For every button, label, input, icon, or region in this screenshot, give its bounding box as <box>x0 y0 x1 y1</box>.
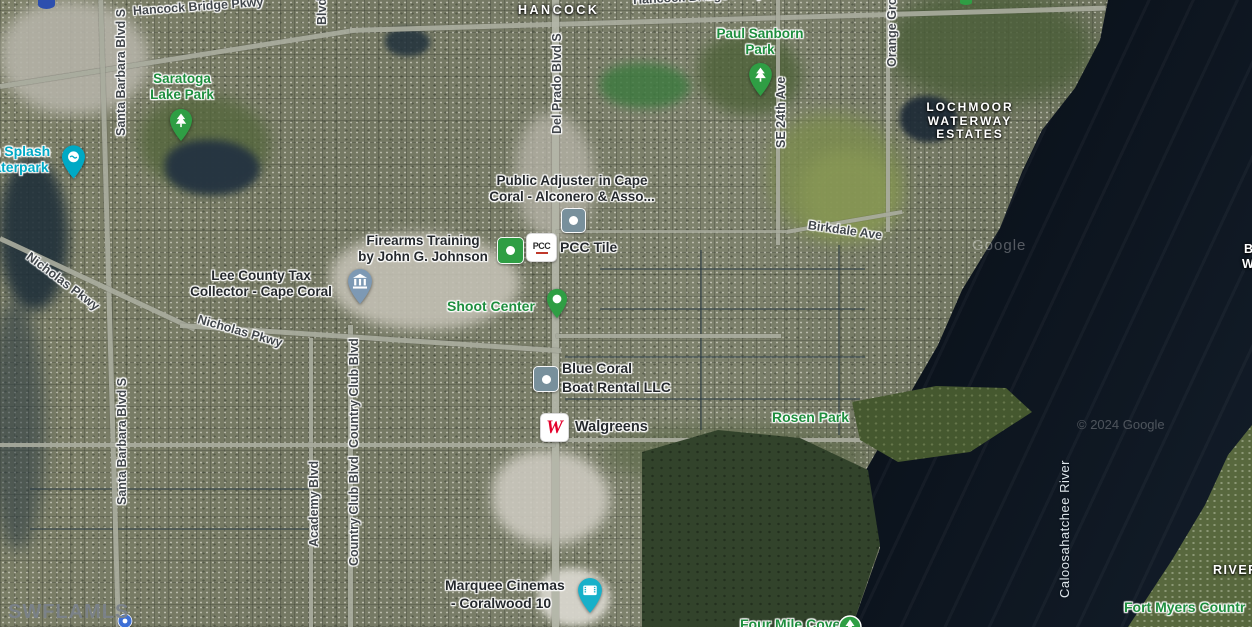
area-label-edge-w: W <box>1242 257 1252 272</box>
trail-pin-icon[interactable] <box>838 615 862 627</box>
terrain-patch <box>600 63 690 108</box>
pin-inner-circle <box>553 295 562 304</box>
poi-label-line: Blue Coral <box>562 359 671 378</box>
street-label-country-club-south: Country Club Blvd <box>347 458 361 566</box>
blue-pin-fragment[interactable] <box>38 0 55 9</box>
poi-label-line: Paul Sanborn <box>705 26 815 42</box>
canal-line <box>565 398 860 400</box>
satellite-map[interactable]: Hancock Bridge Pkwy Hancock Bridge Pkwy … <box>0 0 1252 627</box>
poi-label-line: n Splash <box>0 143 60 159</box>
terrain-patch <box>165 140 260 195</box>
canal-line <box>600 268 865 270</box>
marker-dot <box>506 246 515 255</box>
road-line <box>556 230 786 233</box>
poi-label-blue-coral[interactable]: Blue Coral Boat Rental LLC <box>562 359 671 397</box>
poi-label-rosen-park[interactable]: Rosen Park <box>772 409 849 425</box>
pin-body <box>547 289 567 318</box>
poi-label-line: by John G. Johnson <box>348 249 498 265</box>
poi-label-public-adjuster[interactable]: Public Adjuster in Cape Coral - Alconero… <box>472 173 672 205</box>
poi-label-line: Firearms Training <box>348 233 498 249</box>
walgreens-w-logo: W <box>546 418 563 437</box>
area-label-lochmoor: LOCHMOOR WATERWAY ESTATES <box>903 101 1037 142</box>
poi-label-line: aterpark <box>0 159 60 175</box>
road-line <box>0 443 555 447</box>
poi-label-line: Lake Park <box>133 87 231 103</box>
dot-pin-icon[interactable] <box>546 288 568 319</box>
pcc-logo-underline <box>536 252 548 254</box>
poi-label-fort-myers-country[interactable]: Fort Myers Countr <box>1124 599 1245 615</box>
street-label-del-prado: Del Prado Blvd S <box>550 31 564 137</box>
tree-pin-icon[interactable] <box>169 108 193 142</box>
google-watermark: Google <box>972 237 1026 254</box>
poi-marker-pcc-tile-logo[interactable]: PCC <box>526 233 557 262</box>
area-label-lochmoor-line1: LOCHMOOR <box>903 101 1037 115</box>
poi-marker-firearms-training[interactable] <box>497 237 524 264</box>
poi-label-lee-county-tax[interactable]: Lee County Tax Collector - Cape Coral <box>175 268 347 300</box>
poi-label-line: - Coralwood 10 <box>445 594 557 612</box>
area-label-edge-b: B <box>1244 242 1252 257</box>
poi-label-line: Marquee Cinemas <box>445 576 557 594</box>
poi-label-line: Public Adjuster in Cape <box>472 173 672 189</box>
pcc-logo-text: PCC <box>533 242 551 251</box>
road-line <box>556 334 781 338</box>
canal-line <box>700 250 702 430</box>
poi-label-line: Park <box>705 42 815 58</box>
area-label-river-partial: RIVER <box>1213 563 1252 577</box>
waterpark-pin-icon[interactable] <box>61 144 86 180</box>
poi-label-line: Coral - Alconero & Asso... <box>472 189 672 205</box>
tree-pin-icon[interactable] <box>748 62 773 97</box>
terrain-patch <box>492 450 610 545</box>
bank-pin-icon[interactable] <box>347 268 373 305</box>
poi-label-line: Boat Rental LLC <box>562 378 671 397</box>
street-label-orange-grove: Orange Gro <box>885 0 899 72</box>
bank-column <box>359 279 361 286</box>
poi-label-line: Saratoga <box>133 71 231 87</box>
poi-label-line: Collector - Cape Coral <box>175 284 347 300</box>
canal-line <box>30 528 310 530</box>
green-pin-fragment[interactable] <box>960 0 972 5</box>
canal-line <box>565 356 865 358</box>
poi-label-paul-sanborn-park[interactable]: Paul Sanborn Park <box>705 26 815 58</box>
copyright-watermark: © 2024 Google <box>1077 417 1165 432</box>
tree-trunk <box>760 78 762 82</box>
area-label-lochmoor-line2: WATERWAY <box>903 115 1037 129</box>
poi-marker-walgreens-logo[interactable]: W <box>540 413 569 442</box>
poi-label-shoot-center[interactable]: Shoot Center <box>447 298 535 314</box>
tree-trunk <box>180 124 182 127</box>
street-label-country-club-north: Country Club Blvd <box>347 340 361 448</box>
poi-marker-public-adjuster[interactable] <box>561 208 586 233</box>
water-label-caloosahatchee-river: Caloosahatchee River <box>1057 450 1072 608</box>
street-label-santa-barbara-north: Santa Barbara Blvd S <box>114 10 128 136</box>
cinema-pin-icon[interactable] <box>577 577 603 614</box>
bank-base <box>353 287 367 289</box>
terrain-patch <box>385 28 430 56</box>
poi-label-saratoga-lake-park[interactable]: Saratoga Lake Park <box>133 71 231 103</box>
bank-column <box>364 279 366 286</box>
street-label-blvd-partial: Blvd <box>315 0 329 29</box>
area-label-hancock: HANCOCK <box>518 3 599 17</box>
bank-column <box>354 279 356 286</box>
poi-label-sun-splash-waterpark[interactable]: n Splash aterpark <box>0 143 60 175</box>
area-label-lochmoor-line3: ESTATES <box>903 128 1037 142</box>
mls-watermark: SWFLAMLS <box>8 601 129 624</box>
poi-label-walgreens[interactable]: Walgreens <box>575 419 648 435</box>
area-label-edge-partial: B W <box>1244 242 1252 272</box>
canal-line <box>30 488 310 490</box>
poi-label-marquee-cinemas[interactable]: Marquee Cinemas - Coralwood 10 <box>445 576 557 612</box>
marker-dot <box>569 216 578 225</box>
street-label-santa-barbara-south: Santa Barbara Blvd S <box>115 383 129 505</box>
pin-body <box>578 578 602 613</box>
canal-line <box>838 245 840 435</box>
poi-label-four-mile-cove[interactable]: Four Mile Cove <box>740 616 840 627</box>
poi-label-firearms-training[interactable]: Firearms Training by John G. Johnson <box>348 233 498 265</box>
poi-label-pcc-tile[interactable]: PCC Tile <box>560 239 617 255</box>
poi-label-line: Lee County Tax <box>175 268 347 284</box>
street-label-academy: Academy Blvd <box>307 460 321 548</box>
poi-marker-blue-coral[interactable] <box>533 366 559 392</box>
canal-line <box>600 308 865 310</box>
marker-dot <box>542 375 551 384</box>
street-label-se-24th: SE 24th Ave <box>774 72 788 152</box>
